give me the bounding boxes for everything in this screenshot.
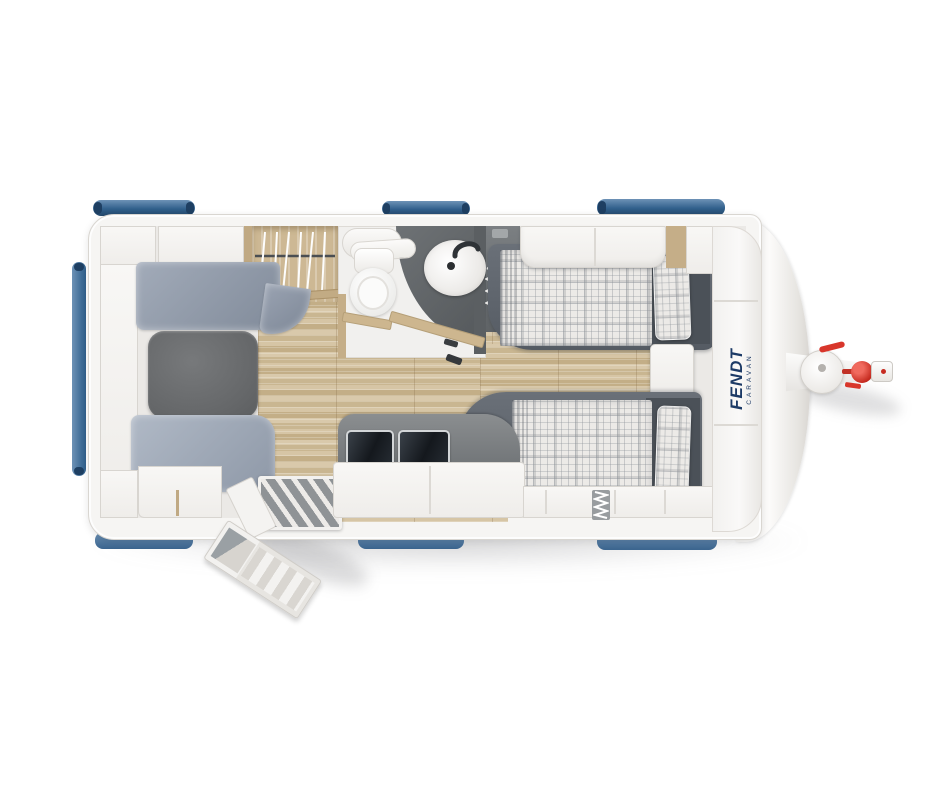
faucet-icon: [452, 236, 482, 262]
window-end-cap: [74, 263, 84, 271]
toilet-seat: [357, 276, 389, 310]
storage-seam: [614, 490, 616, 514]
mount-hole: [818, 364, 826, 372]
socket-dot: [881, 369, 886, 374]
brand-primary: FENDT: [728, 348, 745, 410]
window-end-cap: [94, 202, 102, 214]
window-end-cap: [462, 203, 469, 214]
dinette-table: [148, 331, 258, 418]
overhead-locker: [520, 226, 666, 268]
front-corner-cabinet: [686, 226, 714, 274]
vent: [492, 229, 508, 238]
nightstand: [650, 344, 694, 396]
locker-end-panel: [666, 226, 686, 268]
brand-secondary: CARAVAN: [746, 353, 754, 404]
front-wall-seam: [714, 300, 758, 302]
coupling-head: [851, 361, 873, 383]
bench-divider: [176, 490, 179, 516]
pillow-lower: [654, 405, 691, 494]
gas-spring: [592, 490, 610, 520]
bed-storage-front: [523, 486, 719, 518]
bench-box-corner: [100, 470, 138, 518]
window-end-cap: [74, 467, 84, 475]
coupling-handle: [819, 341, 846, 353]
basin-drain: [447, 262, 455, 270]
window-rear: [72, 262, 86, 476]
window-end-cap: [383, 203, 390, 214]
brand-logo: FENDT CARAVAN: [723, 325, 759, 433]
bathroom-door-frame: [338, 294, 346, 358]
storage-seam: [545, 490, 547, 514]
bed-lower-mattress: [512, 400, 652, 500]
bench-seat-upper: [136, 262, 280, 330]
cabinet-seam: [429, 466, 431, 514]
bench-front-lower: [138, 466, 222, 518]
caravan-floorplan: FENDT CARAVAN: [0, 0, 940, 788]
window-end-cap: [598, 201, 606, 214]
jockey-wheel-mount: [800, 350, 844, 394]
window-end-cap: [186, 202, 194, 214]
spring-icon: [593, 490, 609, 520]
storage-seam: [664, 490, 666, 514]
overhead-shelf: [158, 226, 244, 266]
overhead-shelf: [100, 226, 156, 266]
blanket-fold: [500, 250, 518, 346]
locker-seam: [594, 228, 596, 266]
